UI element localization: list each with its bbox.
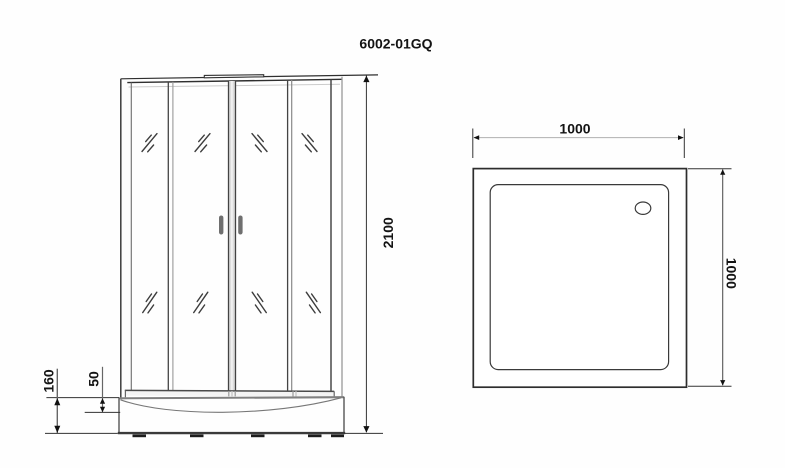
svg-text:2100: 2100 — [380, 217, 396, 248]
svg-text:6002-01GQ: 6002-01GQ — [359, 36, 432, 52]
svg-text:1000: 1000 — [559, 121, 590, 137]
svg-text:1000: 1000 — [724, 258, 740, 289]
svg-text:50: 50 — [86, 371, 102, 387]
svg-text:160: 160 — [41, 369, 57, 393]
